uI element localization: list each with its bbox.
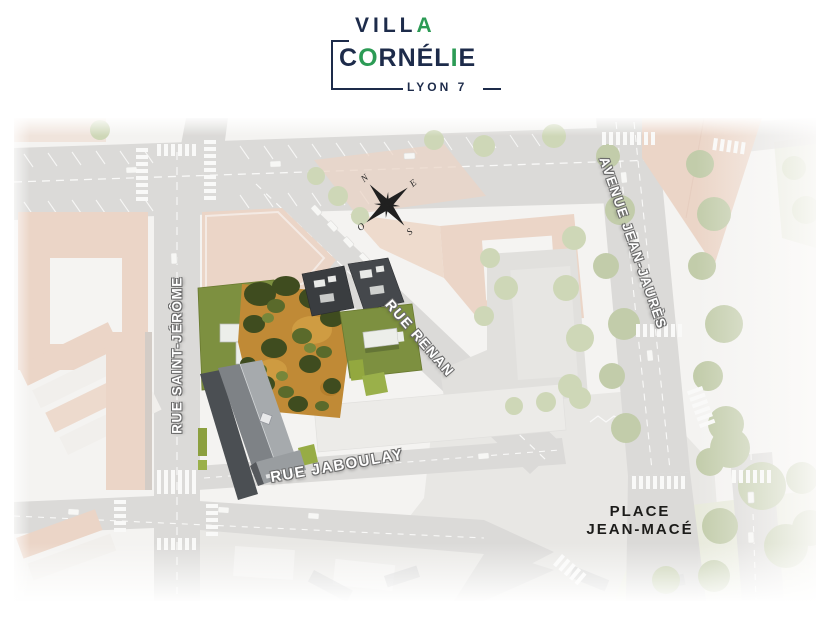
logo-word-cornelie: CORNÉLIE [339,44,476,73]
logo-frame-top [331,40,349,42]
logo-subtitle-lyon7: LYON 7 [407,80,467,94]
street-label-rue-saint-jerome: RUE SAINT-JÉRÔME [170,276,185,434]
place-label-line1: PLACE [586,503,693,521]
logo-cornelie-i: I [451,44,459,72]
flyer-page: VILLA CORNÉLIE LYON 7 [0,0,830,621]
logo-villa-cornelie: VILLA CORNÉLIE LYON 7 [331,14,507,98]
logo-villa-green: A [417,14,436,37]
compass-west-label: O [356,222,368,234]
compass-east-label: E [407,178,419,190]
site-plan-map: N E S O RUE SAINT-JÉRÔME RUE RENAN AVENU… [14,118,816,601]
logo-cornelie-o: O [358,44,378,72]
logo-frame-bottom [331,88,403,90]
logo-cornelie-rnel: RNÉL [379,44,451,72]
logo-cornelie-c: C [339,44,358,72]
logo-villa-navy: VILL [355,14,417,37]
logo-frame-bottom-right [483,88,501,90]
place-label-line2: JEAN-MACÉ [586,521,693,539]
logo-word-villa: VILLA [355,14,436,38]
logo-frame-left [331,40,333,90]
logo-cornelie-e: E [459,44,477,72]
compass-north-label: N [359,173,372,186]
place-jean-mace-label: PLACE JEAN-MACÉ [586,503,693,539]
compass-south-label: S [405,227,415,238]
compass-rose: N E S O [339,157,435,253]
